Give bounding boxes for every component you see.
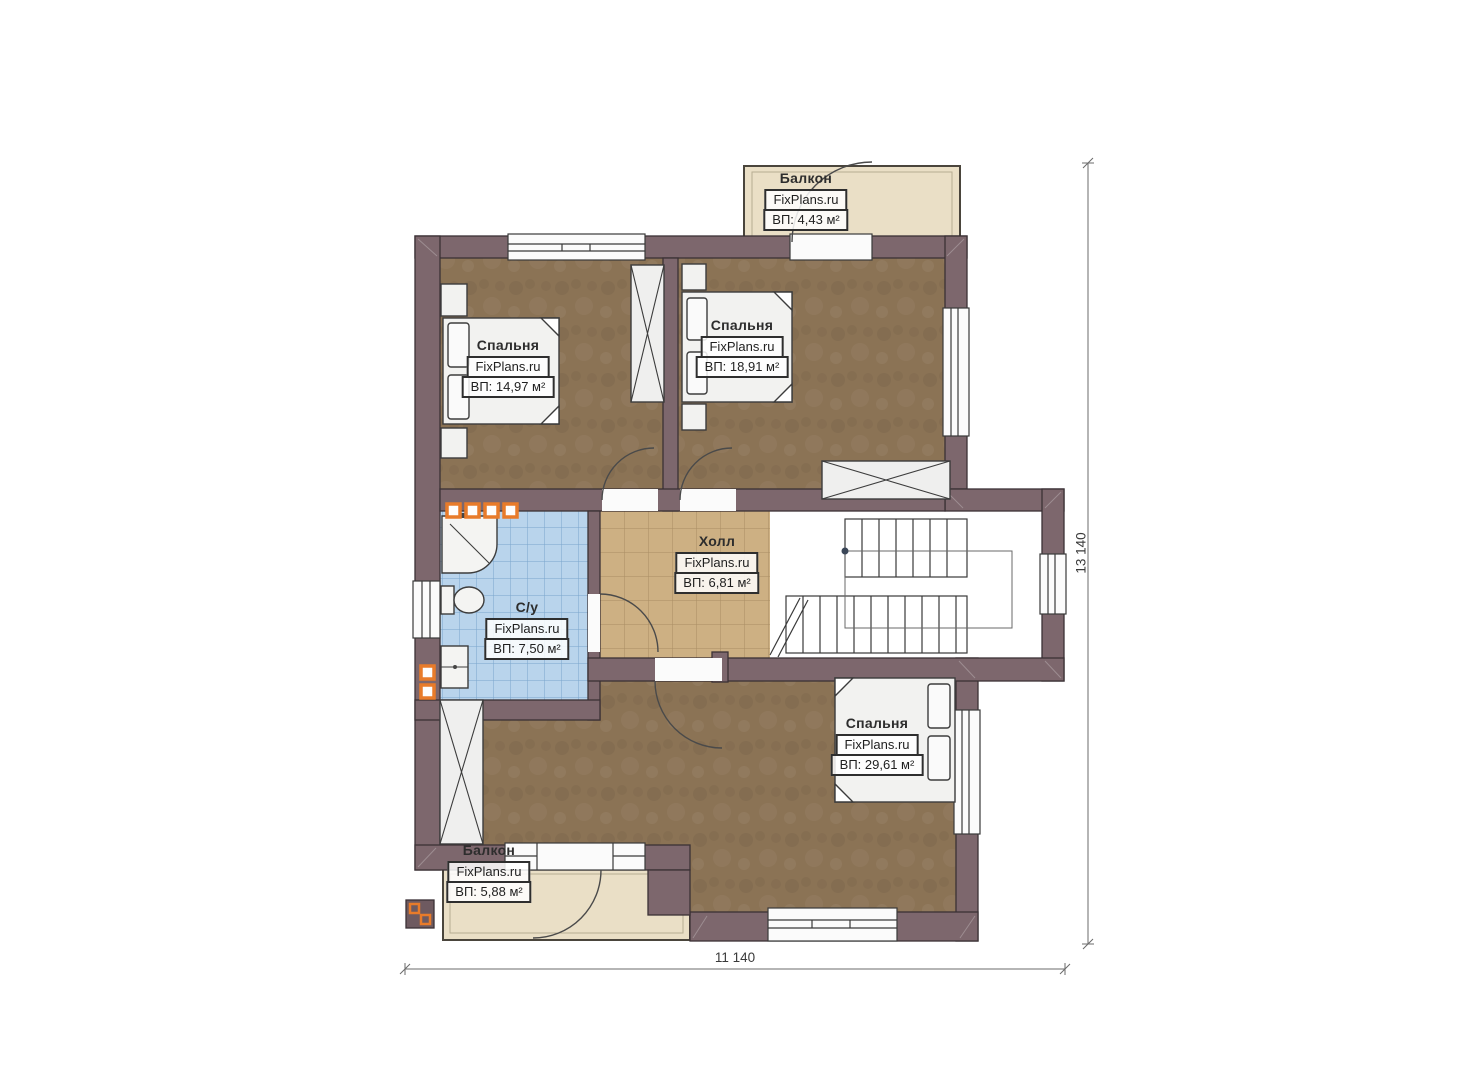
watermark: FixPlans.ru (675, 552, 758, 574)
watermark: FixPlans.ru (835, 734, 918, 756)
doorway-bedroom3 (655, 658, 722, 681)
room-label-bedroom-3: Спальня FixPlans.ru ВП: 29,61 м² (831, 715, 924, 776)
room-label-bedroom-1: Спальня FixPlans.ru ВП: 14,97 м² (462, 337, 555, 398)
window-bedroom3-right (954, 710, 980, 834)
nightstand (441, 284, 467, 316)
shower-icon (442, 513, 497, 573)
window-bedroom2-right (943, 308, 969, 436)
room-name: Холл (699, 533, 735, 549)
sink-icon (441, 646, 468, 688)
room-name: Спальня (711, 317, 774, 333)
dimension-height-label: 13 140 (1074, 532, 1089, 573)
room-name: Спальня (477, 337, 540, 353)
room-area: ВП: 14,97 м² (462, 376, 555, 398)
room-name: Спальня (846, 715, 909, 731)
room-label-balcony-bottom: Балкон FixPlans.ru ВП: 5,88 м² (446, 842, 531, 903)
window-bottom-wall (768, 908, 897, 941)
doorway-bedroom1 (602, 489, 658, 511)
room-area: ВП: 29,61 м² (831, 754, 924, 776)
wardrobe-icon-bedroom2 (822, 461, 950, 499)
nightstand (682, 264, 706, 290)
room-area: ВП: 6,81 м² (674, 572, 759, 594)
room-area: ВП: 18,91 м² (696, 356, 789, 378)
doorway-bedroom2 (680, 489, 736, 511)
floor-plan: Балкон FixPlans.ru ВП: 4,43 м² Спальня F… (0, 0, 1473, 1080)
room-name: Балкон (463, 842, 515, 858)
room-label-balcony-top: Балкон FixPlans.ru ВП: 4,43 м² (763, 170, 848, 231)
wardrobe-icon-bedroom1 (631, 265, 664, 402)
watermark: FixPlans.ru (485, 618, 568, 640)
watermark: FixPlans.ru (764, 189, 847, 211)
opening-balcony-top-door (790, 234, 872, 260)
room-name: С/у (516, 599, 539, 615)
window-stair-right (1040, 554, 1066, 614)
room-area: ВП: 4,43 м² (763, 209, 848, 231)
chimney-block (406, 900, 434, 928)
room-name: Балкон (780, 170, 832, 186)
room-area: ВП: 7,50 м² (484, 638, 569, 660)
window-top-wall (508, 234, 645, 260)
room-label-bedroom-2: Спальня FixPlans.ru ВП: 18,91 м² (696, 317, 789, 378)
nightstand (441, 428, 467, 458)
room-label-bathroom: С/у FixPlans.ru ВП: 7,50 м² (484, 599, 569, 660)
wardrobe-icon-bedroom3 (440, 700, 483, 844)
watermark: FixPlans.ru (466, 356, 549, 378)
doorway-bathroom (588, 594, 600, 652)
room-area: ВП: 5,88 м² (446, 881, 531, 903)
stair-start-marker (842, 548, 849, 555)
dimension-width-label: 11 140 (715, 950, 755, 965)
room-label-hall: Холл FixPlans.ru ВП: 6,81 м² (674, 533, 759, 594)
window-bathroom-left (413, 581, 440, 638)
toilet-icon (441, 586, 484, 614)
watermark: FixPlans.ru (700, 336, 783, 358)
watermark: FixPlans.ru (447, 861, 530, 883)
nightstand (682, 404, 706, 430)
